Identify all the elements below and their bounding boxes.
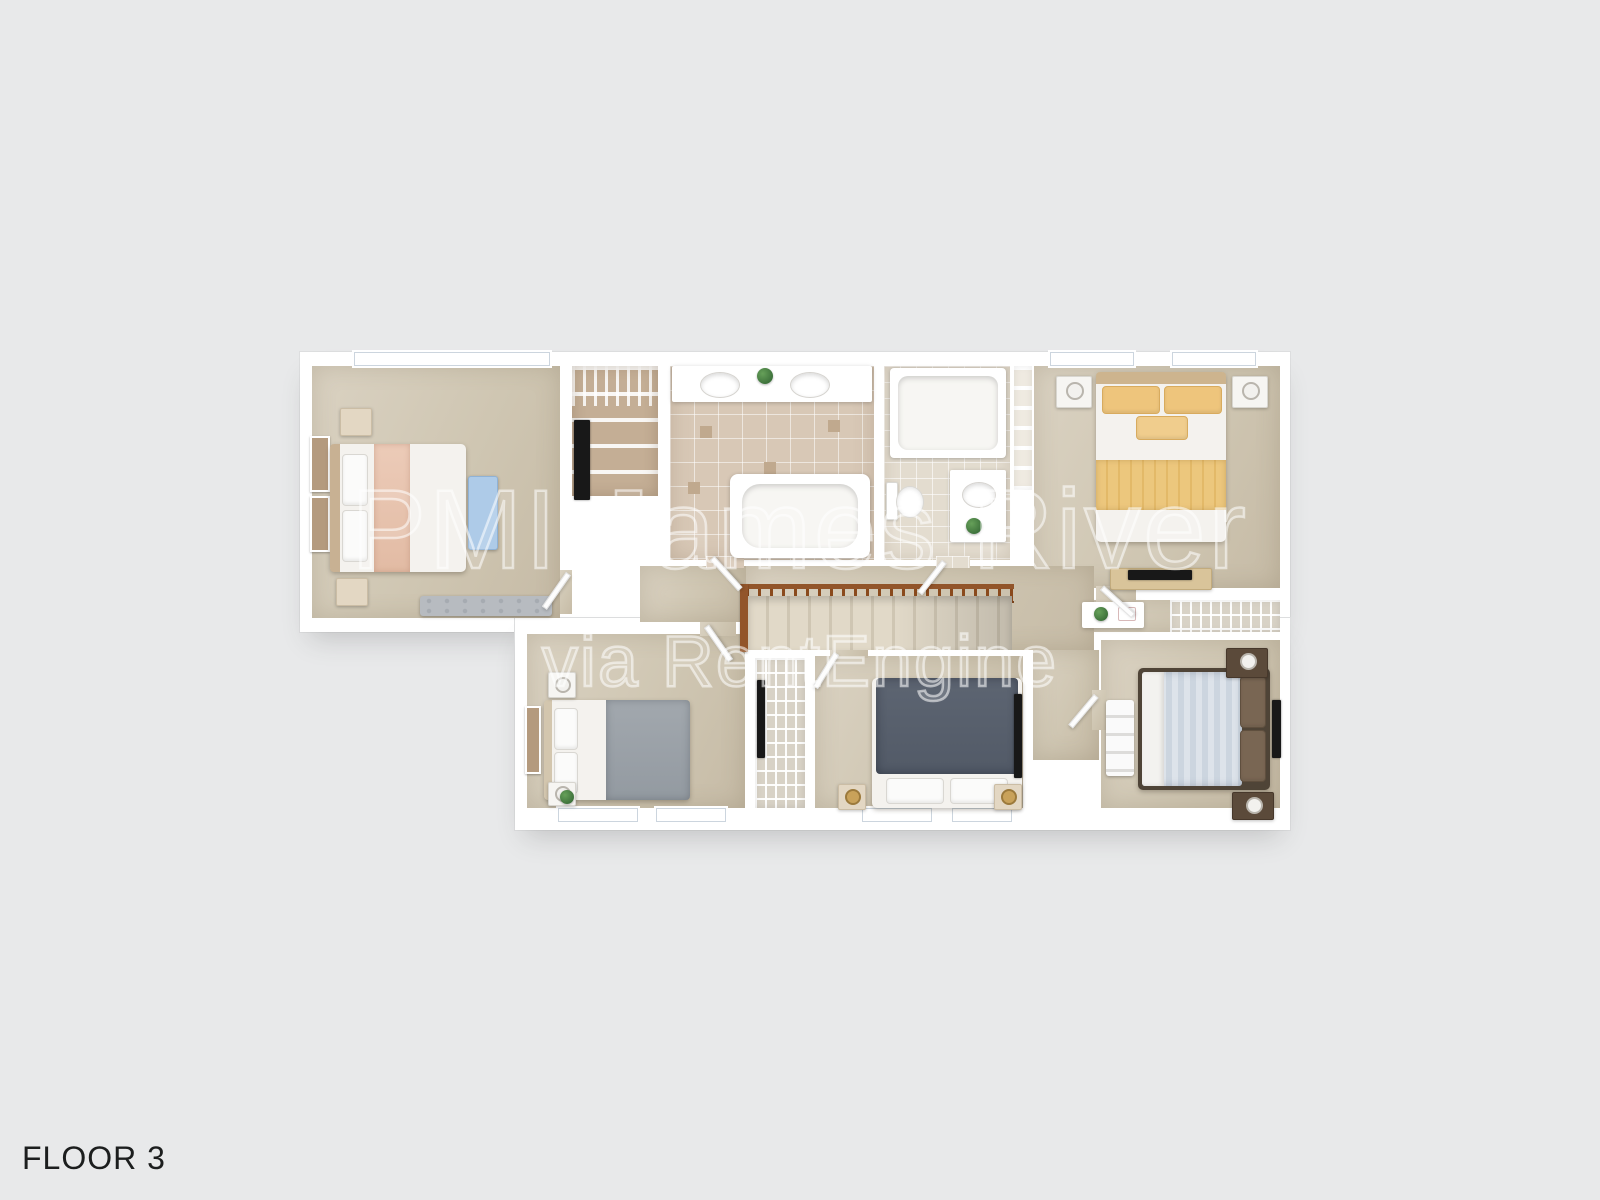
tv [1014,694,1022,778]
bedroom3-window [556,806,640,824]
master-nightstand [340,408,372,436]
master-bed-headboard [330,444,340,572]
shower-tub [890,368,1006,458]
tub-basin [742,484,858,548]
floor-plan-render: PMI James River via RentEngine FLOOR 3 [0,0,1600,1200]
bedroom2-window [1048,350,1136,368]
floor-label: FLOOR 3 [22,1140,166,1177]
vanity-sink [962,482,996,508]
master-bed [330,444,466,572]
yellow-accent-pillow [1136,416,1188,440]
bedroom3-wall-art [525,706,541,774]
brown-pillow [1240,676,1266,728]
pillow [554,708,578,750]
brown-pillow [1240,730,1266,782]
bedroom3-window [654,806,728,824]
toilet-bowl [896,486,924,518]
master-bed-pillow [342,454,368,506]
blue-bench [468,476,498,550]
accent-tile [688,482,700,494]
accent-tile [828,420,840,432]
bedroom5-bed [1138,668,1270,790]
yellow-pillow [1102,386,1160,414]
gray-blanket [606,700,690,800]
yellow-pillow [1164,386,1222,414]
plant [966,518,982,534]
closet-wardrobe [574,420,590,500]
lamp [1240,653,1257,670]
shower-tub-basin [898,376,998,450]
gold-lamp [845,789,861,805]
lamp [1246,797,1263,814]
wire-closet [1170,600,1280,632]
tv [1128,570,1192,580]
vanity-sink [790,372,830,398]
lamp [1066,382,1084,400]
lamp [555,677,571,693]
master-bed-pillow [342,510,368,562]
master-nightstand [336,578,368,606]
plant [560,790,574,804]
pillow [886,778,944,804]
dark-blanket [876,678,1018,774]
stair-railing-post [740,584,748,652]
gold-lamp [1001,789,1017,805]
garden-tub [730,474,870,558]
plant [757,368,773,384]
bedroom2-headboard [1096,372,1226,384]
bedroom5-bench-cushions [1106,700,1134,776]
bedroom2-window [1170,350,1258,368]
staircase [748,596,1012,650]
tv [757,680,765,758]
plant [1094,607,1108,621]
yellow-blanket [1096,460,1226,510]
master-bed-peach-throw [374,444,410,572]
master-bedroom-window [352,350,552,368]
master-bedroom-dresser [310,496,330,552]
lamp [1242,382,1260,400]
vanity-sink [700,372,740,398]
bedroom5-wall-decor [1272,700,1281,758]
bedroom4-window [860,806,934,824]
accent-tile [764,462,776,474]
bedroom2-bed [1096,372,1226,542]
master-bedroom-wall-art [310,436,330,492]
gray-bench [420,596,552,616]
linen-closet-shelves [1014,366,1032,490]
folded-blanket [1142,672,1164,786]
accent-tile [700,426,712,438]
